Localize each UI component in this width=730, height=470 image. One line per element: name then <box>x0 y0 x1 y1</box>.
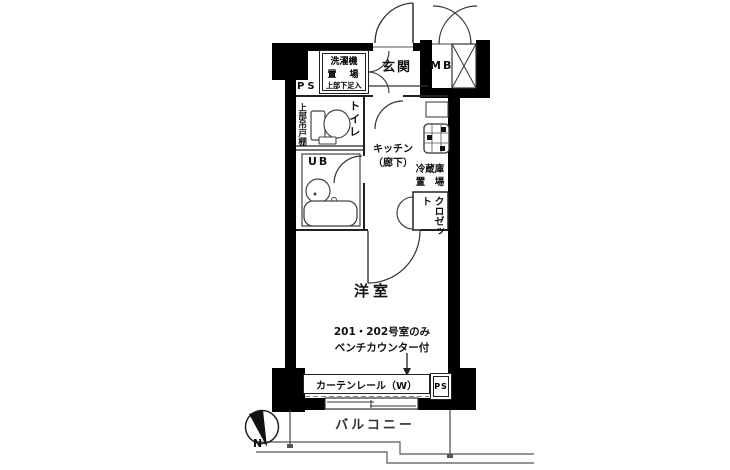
fridge-label-line1: 冷蔵庫 <box>412 163 448 176</box>
fridge-label-line2: 置 場 <box>412 176 448 189</box>
mb-door-left-arc <box>433 6 471 44</box>
wall-mb-right <box>476 40 490 98</box>
ps-bottom-box-inner: PS <box>433 376 449 397</box>
washbasin-icon <box>306 179 330 203</box>
balcony-post-right-foot <box>447 454 453 458</box>
wall-right <box>448 98 460 370</box>
laundry-label-line3: 上部下足入 <box>326 80 362 90</box>
laundry-space-box-inner: 洗濯機 置 場 上部下足入 <box>322 53 366 91</box>
bench-counter-note-line2: ベンチカウンター付 <box>320 341 444 357</box>
laundry-label-line1: 洗濯機 <box>330 54 357 67</box>
closet-door-upper-arc <box>397 197 413 213</box>
room-door-arc <box>368 231 420 283</box>
mb-shaft-box <box>452 44 476 88</box>
kitchen-sink-icon <box>426 102 448 117</box>
curtain-rail-box: カーテンレール（W） <box>303 374 430 394</box>
bath-fitting-icon <box>332 198 337 203</box>
curtain-rail-label: カーテンレール（W） <box>316 377 417 392</box>
laundry-space-box: 洗濯機 置 場 上部下足入 <box>319 50 369 94</box>
ps-top-label: PS <box>297 81 318 94</box>
toilet-label: トイレ <box>347 100 361 148</box>
balcony-label: バルコニー <box>330 418 420 434</box>
western-room-label: 洋室 <box>354 282 392 301</box>
sliding-window-panes <box>327 402 416 406</box>
ps-bottom-label: PS <box>434 382 448 391</box>
upper-cabinet-label: 上部吊戸棚 <box>296 103 307 165</box>
ps-bottom-box: PS <box>430 373 452 400</box>
stove-burner-2 <box>427 135 432 140</box>
mb-door-right-arc <box>439 6 477 44</box>
closet-label: クロゼット <box>417 196 443 236</box>
wall-bottom-left-segment <box>272 398 325 410</box>
bench-counter-note: 201・202号室のみ ベンチカウンター付 <box>320 325 444 356</box>
laundry-label-line2: 置 場 <box>327 67 360 80</box>
entrance-door-arc <box>375 3 413 43</box>
stove-burner-3 <box>440 146 445 151</box>
mb-shaft-diagonal-1 <box>452 44 476 88</box>
mb-shaft-diagonal-2 <box>452 44 476 88</box>
toilet-door-arc <box>375 101 403 129</box>
toilet-base-icon <box>319 137 336 144</box>
balcony-outline-upper <box>256 442 534 454</box>
unit-bath-label: UB <box>308 155 329 169</box>
sliding-window-frame <box>325 398 418 409</box>
toilet-tank-icon <box>311 111 325 140</box>
meter-box-label: MB <box>430 59 453 73</box>
stove-burner-1 <box>441 127 446 132</box>
balcony-outline-lower <box>256 452 534 463</box>
closet-door-lower-arc <box>397 213 413 229</box>
compass-north-label: N <box>253 437 262 451</box>
kitchen-label-line1: キッチン <box>358 143 428 157</box>
bathtub-icon <box>304 201 357 226</box>
balcony-post-left-foot <box>287 444 293 448</box>
bench-counter-note-line1: 201・202号室のみ <box>320 325 444 341</box>
entrance-label: 玄関 <box>382 60 412 76</box>
washbasin-drain-icon <box>314 193 317 196</box>
wall-left <box>285 43 296 412</box>
floor-plan: 洗濯機 置 場 上部下足入 カーテンレール（W） PS PS 玄関 MB 上部吊… <box>0 0 730 470</box>
fridge-label: 冷蔵庫 置 場 <box>412 163 448 189</box>
